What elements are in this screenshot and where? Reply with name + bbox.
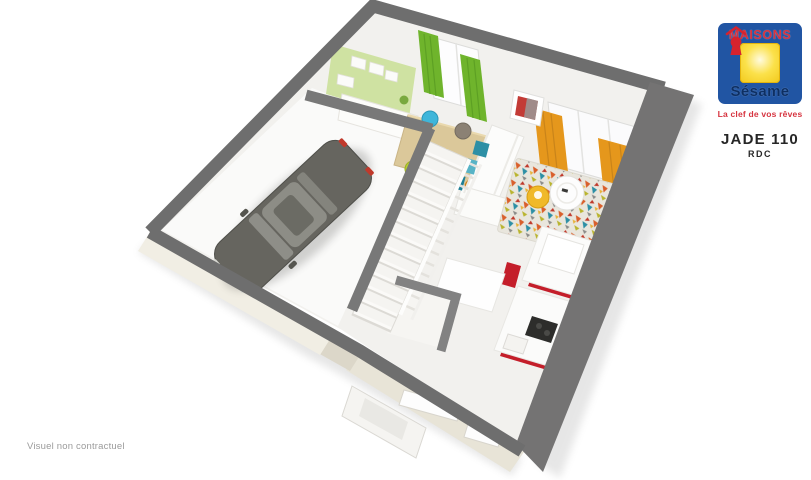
brand-logo-box: MAISONS Sésame [718, 23, 802, 104]
disclaimer-text: Visuel non contractuel [27, 441, 125, 452]
keyhole-icon [740, 43, 780, 83]
plant [400, 96, 409, 105]
plan-title: JADE 110 [700, 131, 811, 148]
plan-title-block: JADE 110 RDC [700, 131, 811, 159]
brand-subname: Sésame [730, 83, 789, 100]
page: MAISONS Sésame La clef de vos rêves JADE… [0, 0, 811, 480]
brand-tagline: La clef de vos rêves [700, 109, 811, 119]
plan-level: RDC [700, 149, 811, 159]
chair [455, 123, 471, 139]
floorplan-3d-render [0, 0, 811, 480]
coffee-table [550, 176, 584, 210]
